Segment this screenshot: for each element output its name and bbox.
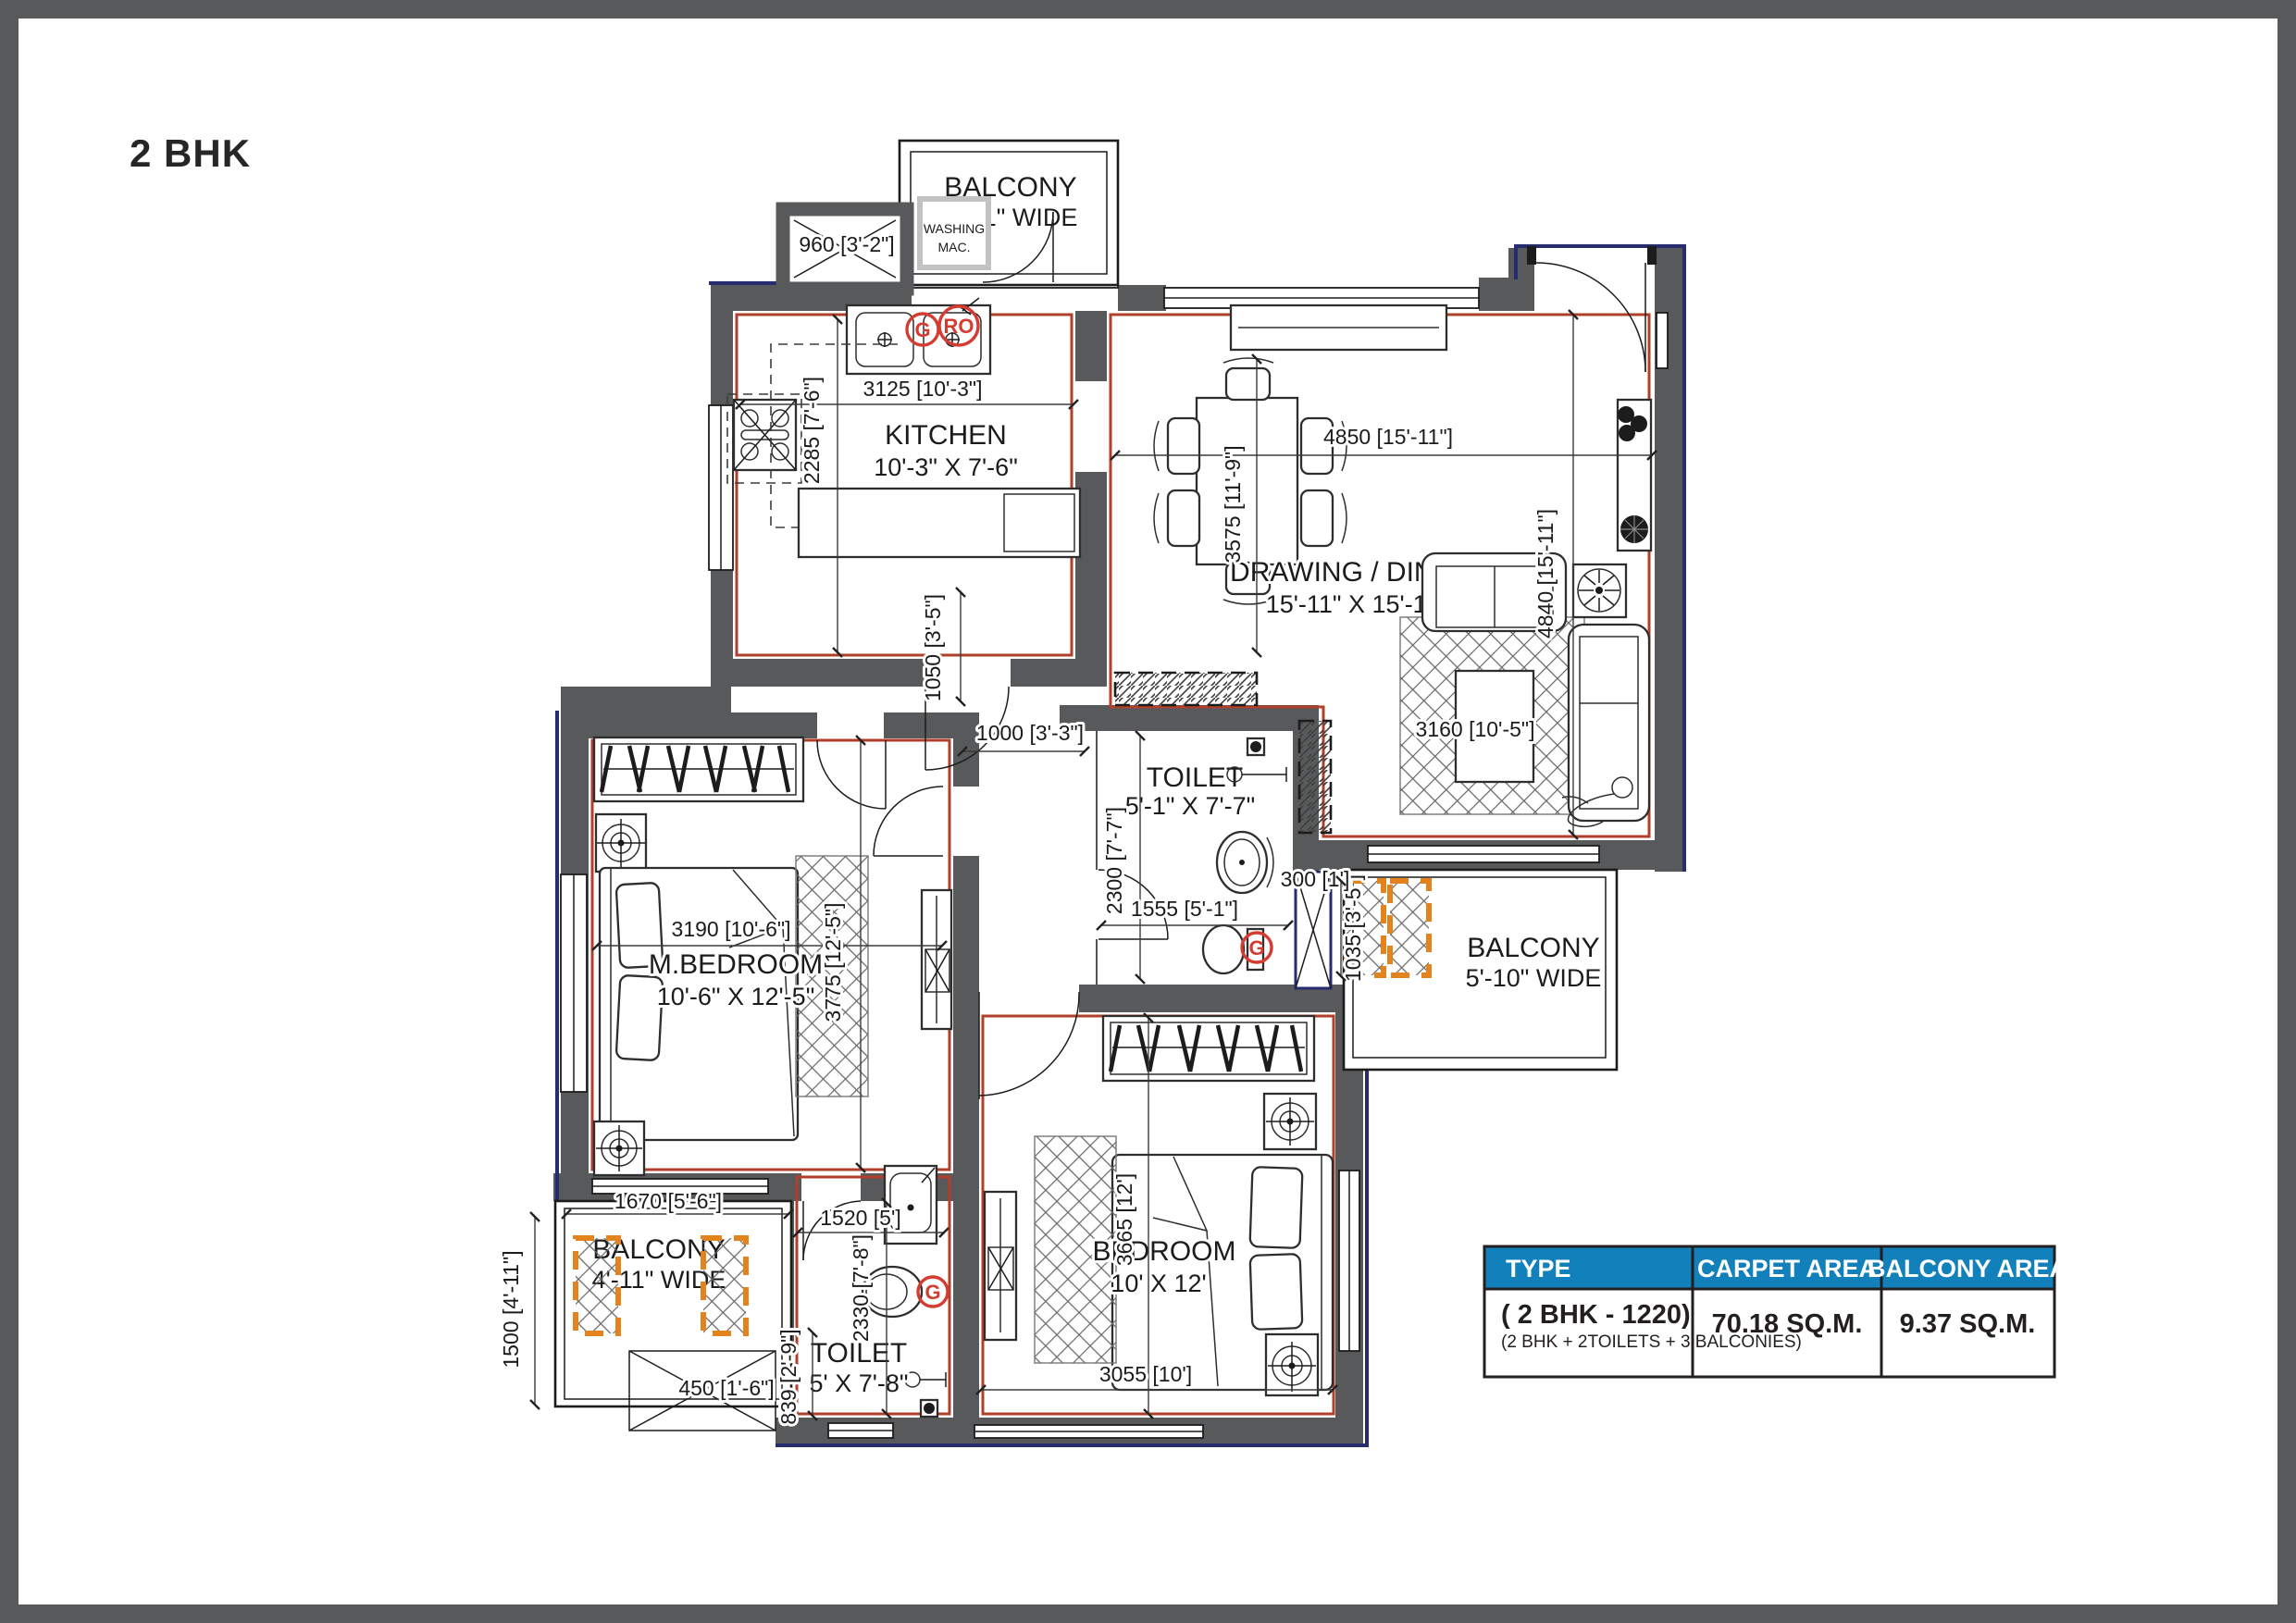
window-mbedroom-left [561, 874, 587, 1092]
dim-1555: 1555 [5'-1"] [1131, 897, 1238, 921]
dim-1050: 1050 [3'-5"] [921, 594, 945, 701]
dim-3055: 3055 [10'] [1099, 1362, 1192, 1386]
window-kitchen-left [709, 405, 733, 570]
kitchen-stove [734, 400, 796, 470]
table-header-type: TYPE [1506, 1255, 1571, 1282]
dim-450: 450 [1'-6"] [678, 1376, 774, 1400]
planter-right-2 [1390, 881, 1429, 975]
window-bottom-toilet [828, 1423, 893, 1438]
toilet-bottom: TOILET 5' X 7'-8" G [803, 1166, 948, 1417]
dim-1670: 1670 [5'-6"] [614, 1189, 722, 1213]
balcony-top: BALCONY 3'-11" WIDE WASHING MAC. [900, 141, 1118, 285]
bedroom-fan-top [1264, 1094, 1316, 1149]
toilet-bottom-tap [905, 1372, 946, 1387]
svg-text:G: G [925, 1281, 940, 1304]
kitchen-size: 10'-3" X 7'-6" [874, 453, 1018, 481]
window-drawing-bottom [1368, 846, 1599, 862]
dim-1000: 1000 [3'-3"] [976, 721, 1084, 745]
toilet-mid-drain [1247, 738, 1264, 755]
dim-3125: 3125 [10'-3"] [863, 377, 983, 401]
washing-machine-label-2: MAC. [938, 240, 971, 254]
balcony-right-size: 5'-10" WIDE [1466, 964, 1602, 992]
table-header-carpet-area: CARPET AREA [1697, 1255, 1877, 1282]
bedroom-fan-bottom [1266, 1334, 1318, 1395]
sofa-long [1569, 625, 1649, 821]
toilet-bottom-drain [921, 1400, 937, 1417]
mbed-fan-bottom [594, 1121, 644, 1175]
washing-machine-label-1: WASHING [924, 221, 985, 236]
dim-3775: 3775 [12'-5"] [821, 903, 845, 1022]
drawing-carpet [1400, 617, 1584, 814]
dim-3190: 3190 [10'-6"] [672, 917, 791, 941]
window-bottom-bedroom [974, 1425, 1203, 1438]
balcony-right-label: BALCONY [1467, 933, 1599, 963]
mbed-dresser [922, 890, 951, 1029]
plant-shelf [1618, 400, 1651, 551]
toilet-mid-basin [1217, 832, 1273, 893]
svg-text:G: G [914, 318, 930, 341]
kitchen-label: KITCHEN [885, 420, 1007, 451]
m-bedroom: M.BEDROOM 10'-6" X 12'-5" [594, 737, 951, 1175]
window-bedroom-right [1339, 1171, 1359, 1351]
bedroom-door [979, 992, 1079, 1099]
dim-3160: 3160 [10'-5"] [1416, 717, 1535, 741]
mbed-corridor-door [874, 787, 943, 856]
svg-text:G: G [1248, 936, 1264, 960]
toilet-mid-shower-screen [1115, 673, 1257, 705]
dim-3665: 3665 [12'] [1112, 1173, 1136, 1266]
bedroom-dresser [985, 1192, 1016, 1340]
dim-2300: 2300 [7'-7"] [1102, 807, 1126, 914]
table-header-balcony-area: BALCONY AREA [1868, 1255, 2067, 1282]
dim-300: 300 [1'] [1281, 867, 1350, 891]
table-cell-carpet: 70.18 SQ.M. [1712, 1309, 1863, 1339]
right-wall-niche [1657, 313, 1668, 368]
mbed-wardrobe [594, 737, 803, 801]
bedroom-size: 10' X 12' [1111, 1270, 1206, 1297]
dim-839: 839 [2'-9"] [776, 1329, 800, 1424]
area-table: TYPE CARPET AREA BALCONY AREA ( 2 BHK - … [1484, 1246, 2067, 1377]
mbedroom-size: 10'-6" X 12'-5" [657, 983, 815, 1010]
dim-1500: 1500 [4'-11"] [499, 1250, 523, 1368]
toilet-mid-size: 5'-1" X 7'-7" [1125, 792, 1256, 820]
svg-text:RO: RO [944, 315, 974, 338]
floor-plan-page: 2 BHK [0, 0, 2296, 1623]
dim-2285: 2285 [7'-6"] [800, 377, 824, 484]
table-cell-balcony: 9.37 SQ.M. [1900, 1309, 2036, 1339]
dim-2330: 2330 [7'-8"] [849, 1234, 873, 1342]
mbedroom-label: M.BEDROOM [649, 949, 823, 980]
ceiling-fan [1573, 564, 1626, 617]
page-title: 2 BHK [130, 131, 251, 175]
washing-machine: WASHING MAC. [920, 199, 988, 267]
dim-4850: 4850 [15'-11"] [1323, 425, 1453, 449]
kitchen-counter-strip [799, 489, 1080, 557]
kitchen: KITCHEN 10'-3" X 7'-6" G RO [727, 298, 1080, 770]
table-cell-type: ( 2 BHK - 1220) [1501, 1300, 1691, 1330]
bedroom: BEDROOM 10' X 12' [979, 992, 1333, 1395]
duct-shaft-top: 960 [3'-2"] [783, 209, 907, 289]
dim-3575: 3575 [11'-9"] [1221, 445, 1245, 563]
floor-plan-canvas: 2 BHK [0, 0, 2296, 1623]
marker-g-toilet-mid: G [1242, 933, 1272, 962]
tv-console [1231, 305, 1446, 350]
entrance-door [1527, 246, 1657, 372]
bedroom-wardrobe [1103, 1016, 1314, 1081]
planter-bottom-2 [703, 1238, 746, 1333]
drawing-size: 15'-11" X 15'-11" [1266, 590, 1448, 618]
dim-1520: 1520 [5'] [820, 1206, 901, 1230]
toilet-mid-side-screen [1299, 721, 1331, 833]
dim-4840: 4840 [15'-11"] [1533, 509, 1558, 638]
dim-960: 960 [3'-2"] [799, 232, 894, 256]
mbed-top-door [817, 740, 886, 809]
mbed-fan-top [596, 814, 646, 872]
planter-bottom-1 [576, 1238, 618, 1333]
toilet-bottom-size: 5' X 7'-8" [810, 1369, 909, 1397]
